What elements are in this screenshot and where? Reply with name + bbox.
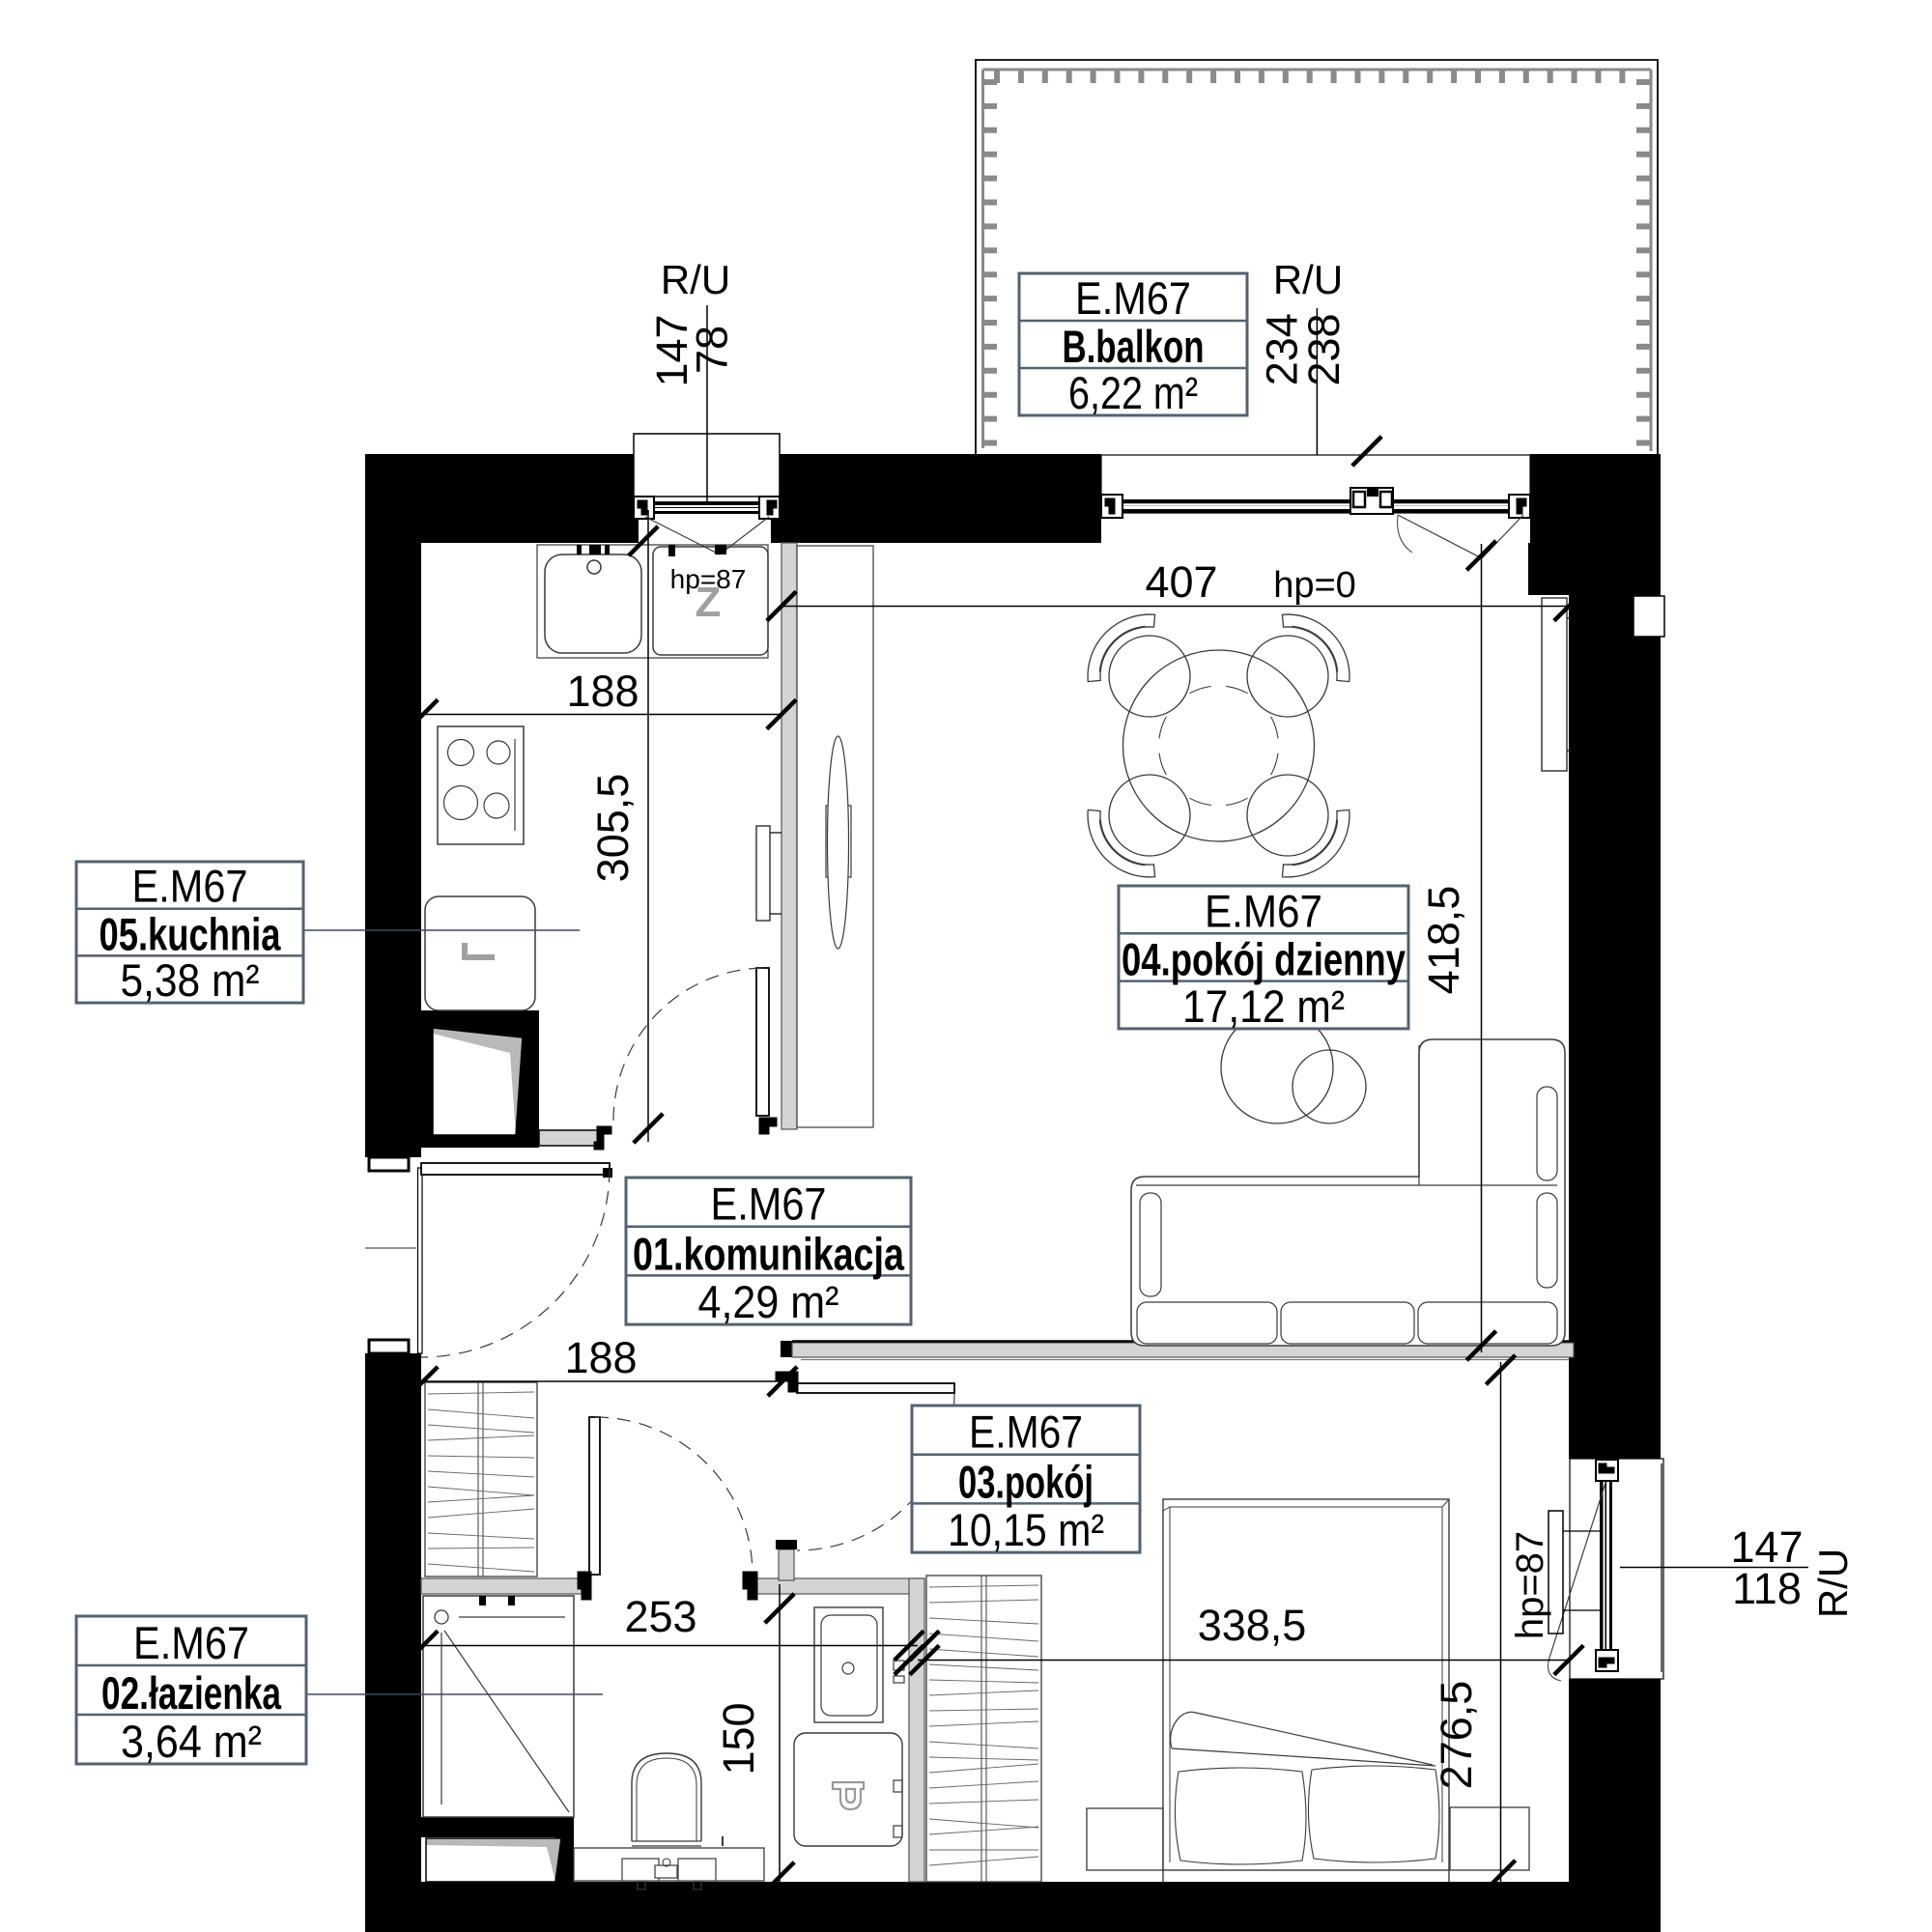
svg-text:01.komunikacja: 01.komunikacja bbox=[633, 1228, 905, 1279]
svg-text:02.łazienka: 02.łazienka bbox=[101, 1667, 282, 1719]
svg-text:10,15 m²: 10,15 m² bbox=[948, 1504, 1104, 1555]
svg-text:118: 118 bbox=[1732, 1564, 1802, 1613]
svg-text:5,38 m²: 5,38 m² bbox=[121, 954, 260, 1006]
svg-text:B.balkon: B.balkon bbox=[1063, 321, 1205, 372]
svg-text:78: 78 bbox=[688, 326, 737, 374]
svg-text:238: 238 bbox=[1299, 313, 1349, 385]
svg-text:05.kuchnia: 05.kuchnia bbox=[99, 908, 282, 959]
svg-text:4,29 m²: 4,29 m² bbox=[698, 1276, 839, 1327]
svg-text:17,12 m²: 17,12 m² bbox=[1182, 980, 1345, 1032]
svg-text:338,5: 338,5 bbox=[1198, 1601, 1307, 1650]
svg-text:hp=0: hp=0 bbox=[1273, 565, 1356, 606]
svg-text:hp=87: hp=87 bbox=[670, 564, 747, 594]
svg-text:R/U: R/U bbox=[661, 257, 730, 302]
svg-text:276,5: 276,5 bbox=[1432, 1681, 1481, 1790]
svg-text:150: 150 bbox=[714, 1702, 763, 1775]
svg-text:E.M67: E.M67 bbox=[133, 1617, 249, 1668]
svg-text:E.M67: E.M67 bbox=[1205, 885, 1322, 936]
svg-text:418,5: 418,5 bbox=[1419, 886, 1468, 995]
svg-text:3,64 m²: 3,64 m² bbox=[121, 1716, 262, 1767]
svg-text:hp=87: hp=87 bbox=[1509, 1531, 1551, 1639]
svg-text:E.M67: E.M67 bbox=[1075, 272, 1191, 324]
svg-text:E.M67: E.M67 bbox=[969, 1406, 1083, 1458]
svg-text:305,5: 305,5 bbox=[588, 774, 638, 883]
svg-text:6,22 m²: 6,22 m² bbox=[1068, 367, 1198, 418]
svg-text:E.M67: E.M67 bbox=[711, 1179, 827, 1230]
svg-text:253: 253 bbox=[624, 1592, 696, 1641]
svg-text:04.pokój dzienny: 04.pokój dzienny bbox=[1122, 934, 1406, 985]
svg-text:188: 188 bbox=[564, 1333, 637, 1382]
svg-text:03.pokój: 03.pokój bbox=[958, 1456, 1094, 1507]
svg-text:E.M67: E.M67 bbox=[132, 861, 248, 912]
svg-text:R/U: R/U bbox=[1810, 1548, 1856, 1618]
svg-text:R/U: R/U bbox=[1273, 257, 1343, 302]
svg-text:407: 407 bbox=[1145, 557, 1217, 607]
svg-text:188: 188 bbox=[566, 667, 639, 716]
